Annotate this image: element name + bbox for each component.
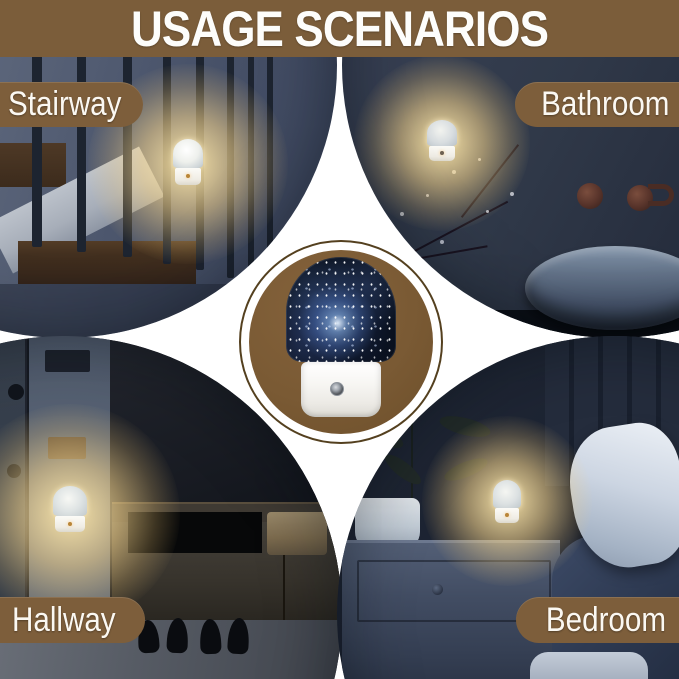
scenario-label-hallway: Hallway <box>0 597 145 643</box>
door-knob <box>8 384 24 400</box>
stair-baluster <box>32 42 42 247</box>
wall-outlet <box>45 350 90 372</box>
bench-cushion <box>267 512 327 555</box>
night-light-dome <box>427 120 457 146</box>
night-light <box>427 120 457 161</box>
plant-leaf <box>381 450 425 489</box>
stair-baluster <box>77 42 86 252</box>
faucet-handle <box>577 183 603 209</box>
sensor-dot <box>68 522 72 526</box>
scenario-label-stairway: Stairway <box>0 82 143 127</box>
sensor-dot <box>186 174 190 178</box>
usage-scenarios-poster: USAGE SCENARIOS Stairway Bathroom Hallwa… <box>0 0 679 679</box>
title-bar: USAGE SCENARIOS <box>0 0 679 57</box>
page-title: USAGE SCENARIOS <box>41 0 639 57</box>
night-light-dome <box>493 480 521 508</box>
night-light <box>52 486 88 532</box>
scenario-label-text: Stairway <box>8 82 121 127</box>
night-light-dome <box>53 486 87 516</box>
night-light <box>173 139 203 185</box>
sensor-dot <box>505 513 509 517</box>
night-light <box>493 480 521 523</box>
scenario-label-text: Bathroom <box>541 82 669 127</box>
scenario-label-bathroom: Bathroom <box>515 82 679 127</box>
night-light-dome <box>173 139 203 168</box>
light-sensor <box>330 382 344 396</box>
drawer-knob <box>432 584 443 595</box>
bed-sheet-edge <box>530 652 648 679</box>
scenario-label-text: Bedroom <box>546 597 666 643</box>
product-galaxy-dome <box>286 257 396 362</box>
faucet-spout <box>648 184 674 206</box>
scenario-label-text: Hallway <box>12 597 116 643</box>
scenario-label-bedroom: Bedroom <box>516 597 679 643</box>
sensor-dot <box>440 151 444 155</box>
product-medallion <box>239 240 443 444</box>
stair-lower-wall <box>0 284 250 338</box>
